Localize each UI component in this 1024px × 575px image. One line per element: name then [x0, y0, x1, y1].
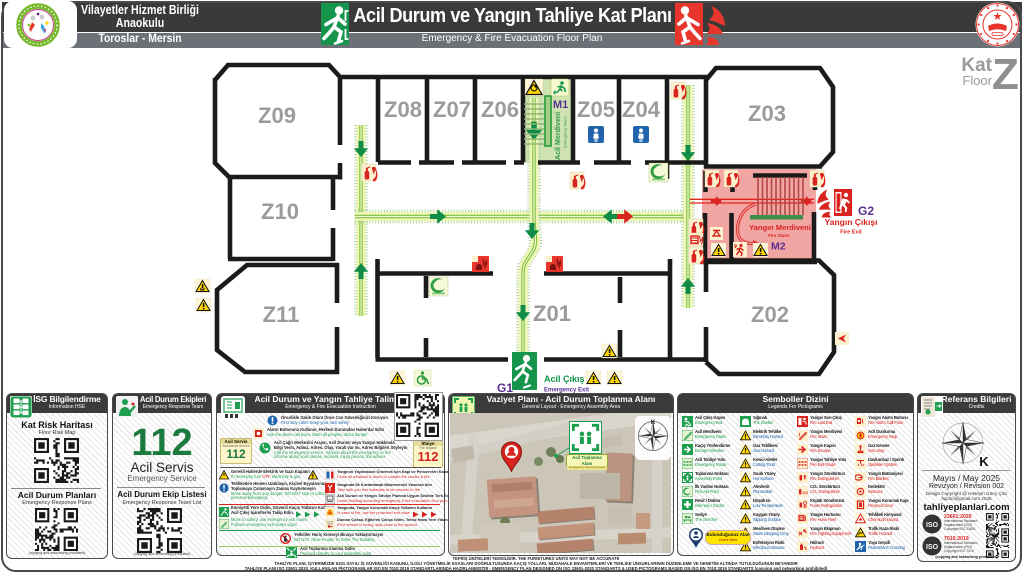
svg-text:K: K — [651, 420, 656, 426]
svg-text:EX: EX — [200, 287, 206, 292]
svg-text:Z07: Z07 — [433, 97, 471, 122]
svg-text:Z02: Z02 — [751, 302, 789, 327]
svg-text:Z10: Z10 — [261, 199, 299, 224]
svg-text:Z09: Z09 — [258, 103, 296, 128]
svg-text:Fire Stairs: Fire Stairs — [768, 233, 790, 238]
svg-text:Acil Çıkış: Acil Çıkış — [544, 374, 585, 384]
svg-text:M1: M1 — [553, 99, 568, 111]
svg-text:Z03: Z03 — [748, 101, 786, 126]
svg-text:K: K — [979, 454, 989, 469]
svg-text:Z05: Z05 — [577, 97, 615, 122]
svg-text:ISO: ISO — [926, 544, 939, 551]
svg-text:ISO: ISO — [926, 522, 939, 529]
svg-text:CO₂: CO₂ — [803, 490, 809, 495]
svg-text:Z04: Z04 — [622, 97, 661, 122]
svg-text:Emergency Stairs: Emergency Stairs — [563, 116, 568, 148]
svg-text:Z06: Z06 — [481, 97, 519, 122]
svg-text:Z01: Z01 — [533, 301, 571, 326]
svg-text:Acil Merdiveni: Acil Merdiveni — [554, 112, 562, 160]
svg-text:M2: M2 — [771, 241, 786, 253]
svg-text:Yangın Çıkışı: Yangın Çıkışı — [825, 217, 878, 227]
svg-text:Z08: Z08 — [384, 97, 422, 122]
svg-text:Fire Exit: Fire Exit — [840, 230, 862, 236]
svg-text:Yangın Merdiveni: Yangın Merdiveni — [749, 223, 811, 232]
svg-text:Z11: Z11 — [263, 302, 300, 327]
svg-text:G2: G2 — [858, 204, 874, 218]
